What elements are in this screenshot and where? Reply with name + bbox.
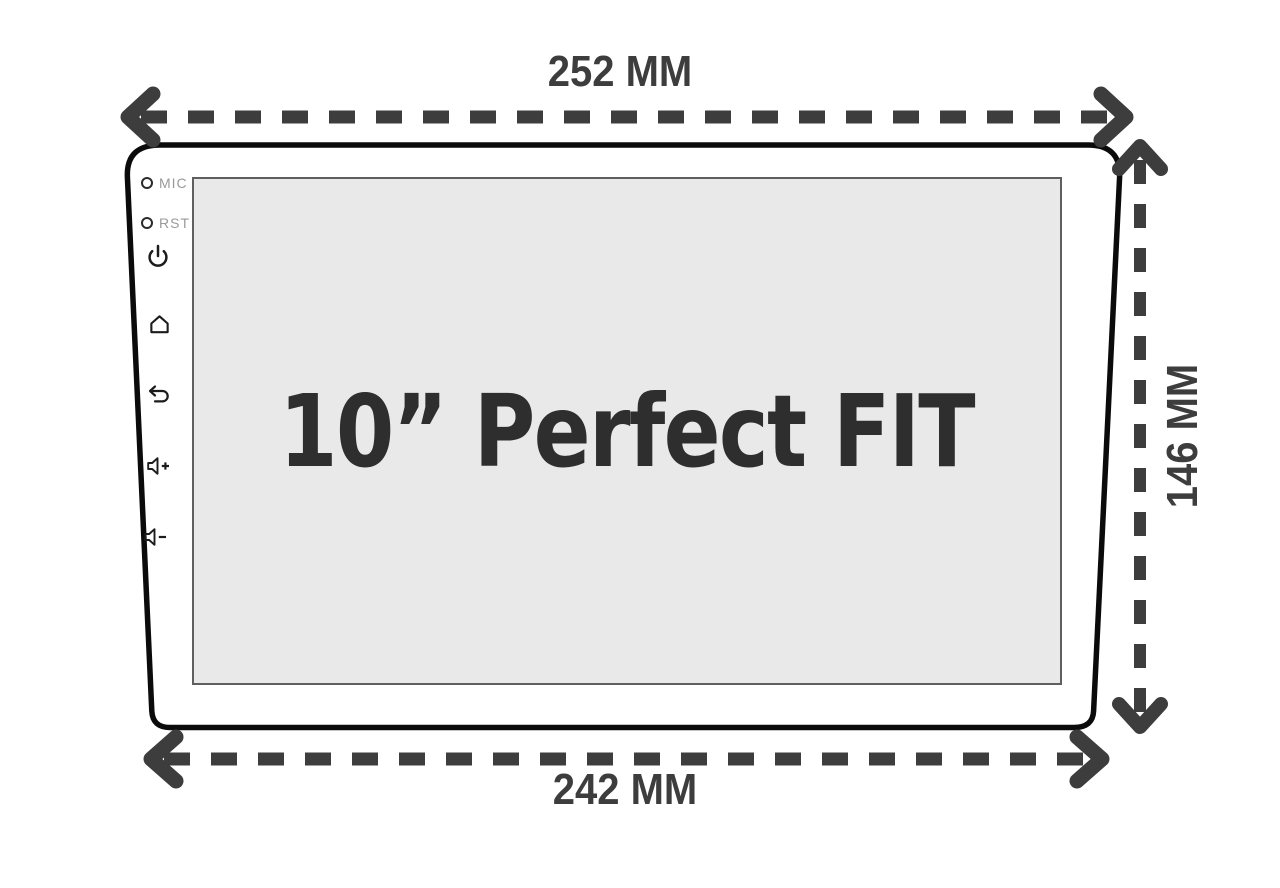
top-width-label: 252 MM: [420, 48, 820, 96]
mic-hole-icon: [141, 177, 153, 189]
volume-down-button: [143, 527, 171, 547]
volume-up-icon: [146, 456, 174, 476]
height-arrow: [1119, 146, 1161, 727]
rst-label: RST: [159, 216, 190, 230]
top-width-arrow: [128, 94, 1126, 140]
height-label: 146 MM: [1159, 336, 1207, 536]
rst-port: RST: [141, 216, 190, 230]
home-button: [148, 313, 171, 335]
volume-up-button: [146, 456, 174, 476]
power-icon: [146, 244, 170, 270]
dimension-diagram: 252 MM 242 MM 146 MM 10” Perfect FIT MIC…: [0, 0, 1280, 888]
screen-title: 10” Perfect FIT: [280, 373, 975, 490]
mic-port: MIC: [141, 176, 188, 190]
rst-hole-icon: [141, 217, 153, 229]
bottom-width-label: 242 MM: [425, 766, 825, 814]
mic-label: MIC: [159, 176, 188, 190]
volume-down-icon: [143, 527, 171, 547]
home-icon: [148, 313, 171, 335]
power-button: [146, 244, 170, 270]
back-icon: [146, 384, 172, 406]
device-screen: 10” Perfect FIT: [192, 177, 1062, 685]
back-button: [146, 384, 172, 406]
